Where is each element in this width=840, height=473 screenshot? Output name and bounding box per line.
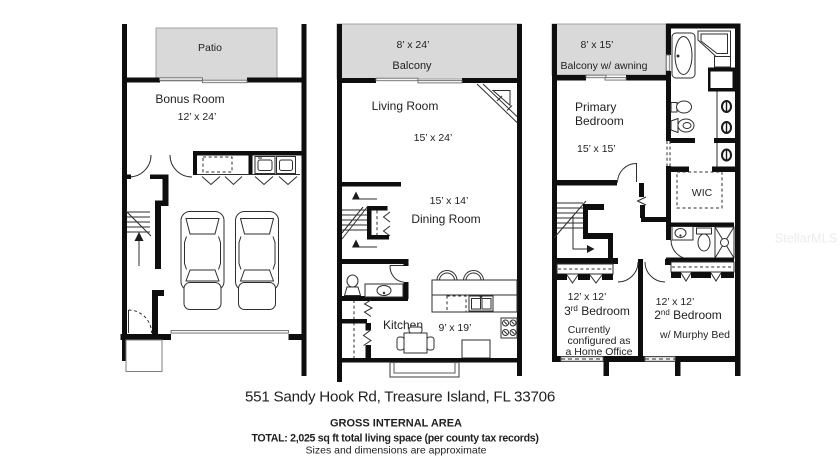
svg-text:12’ x 12’: 12’ x 12’ <box>568 291 607 303</box>
svg-text:Bonus Room: Bonus Room <box>155 92 224 106</box>
svg-text:15’ x 24’: 15’ x 24’ <box>414 132 453 144</box>
svg-text:Patio: Patio <box>198 42 222 54</box>
svg-text:Bedroom: Bedroom <box>575 114 624 128</box>
svg-text:Dining Room: Dining Room <box>411 212 480 226</box>
svg-text:TOTAL: 2,025 sq ft total livin: TOTAL: 2,025 sq ft total living space (p… <box>251 433 538 445</box>
svg-text:GROSS INTERNAL AREA: GROSS INTERNAL AREA <box>330 418 462 430</box>
svg-text:12’ x 24’: 12’ x 24’ <box>178 111 217 123</box>
svg-text:Balcony w/ awning: Balcony w/ awning <box>561 60 648 72</box>
svg-text:8’ x 24’: 8’ x 24’ <box>397 39 430 51</box>
svg-text:8’ x 15’: 8’ x 15’ <box>581 39 614 51</box>
svg-text:12’ x 12’: 12’ x 12’ <box>656 296 695 308</box>
svg-text:9’ x 19’: 9’ x 19’ <box>439 322 472 334</box>
svg-text:WIC: WIC <box>692 187 713 199</box>
svg-text:551 Sandy Hook Rd, Treasure Is: 551 Sandy Hook Rd, Treasure Island, FL 3… <box>245 389 555 406</box>
svg-text:Sizes and dimensions are appro: Sizes and dimensions are approximate <box>306 445 487 457</box>
svg-text:w/ Murphy Bed: w/ Murphy Bed <box>659 329 730 341</box>
svg-text:Living Room: Living Room <box>372 99 439 113</box>
svg-text:StellarMLS: StellarMLS <box>775 231 838 246</box>
svg-text:Primary: Primary <box>575 100 616 114</box>
svg-text:15’ x 14’: 15’ x 14’ <box>430 195 469 207</box>
svg-text:Balcony: Balcony <box>392 60 432 72</box>
svg-text:15’ x 15’: 15’ x 15’ <box>577 143 616 155</box>
